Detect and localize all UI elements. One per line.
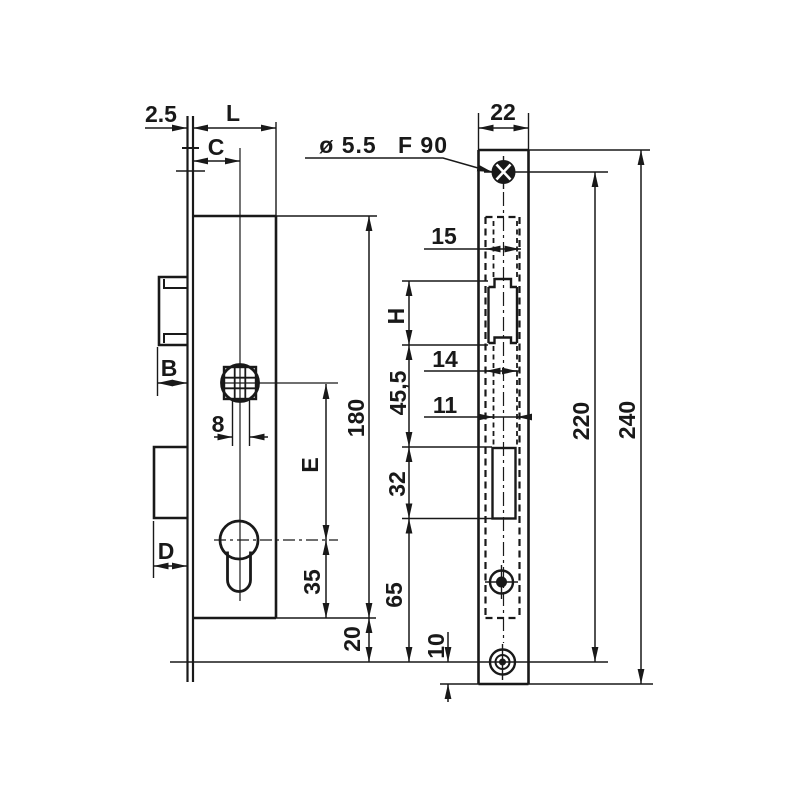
dim-backset: C (193, 134, 240, 161)
svg-text:240: 240 (614, 401, 640, 439)
svg-text:C: C (208, 134, 225, 160)
dim-plate-thickness: 2.5 (145, 101, 187, 128)
dim-latch-face-width: 14 (424, 346, 519, 372)
latch-opening (489, 279, 518, 343)
dim-latch-projection: B (158, 355, 188, 383)
svg-text:220: 220 (568, 402, 594, 440)
dim-bolt-to-plate-end: 65 (381, 519, 409, 663)
dim-screw-edge-offset: 10 (423, 632, 449, 702)
svg-text:11: 11 (433, 392, 458, 418)
dim-case-depth: L (193, 100, 276, 128)
latch-bolt-edge (159, 277, 187, 345)
dim-bolt-projection: D (154, 538, 188, 566)
cylinder-screw-hole (485, 565, 518, 599)
svg-text:L: L (226, 100, 240, 126)
dimensions: 2.5 L C ø 5.5 F 90 22 (145, 99, 641, 702)
svg-text:180: 180 (343, 399, 369, 437)
technical-drawing: 2.5 L C ø 5.5 F 90 22 (0, 0, 800, 800)
svg-text:20: 20 (339, 626, 365, 652)
svg-text:15: 15 (431, 223, 457, 249)
dim-latch-to-bolt: 45,5 (385, 345, 411, 447)
dim-cylinder-to-case-bottom: 35 (299, 540, 326, 618)
svg-text:ø 5.5: ø 5.5 (319, 132, 376, 158)
svg-text:2.5: 2.5 (145, 101, 177, 127)
dim-latch-opening-height: H (383, 281, 409, 345)
top-screw-hole (492, 156, 516, 189)
svg-text:F 90: F 90 (398, 132, 448, 158)
svg-text:E: E (297, 457, 323, 472)
dim-bolt-opening-height: 32 (384, 447, 410, 519)
svg-text:35: 35 (299, 569, 325, 595)
follower-square-hole (221, 365, 338, 402)
dim-case-width: 15 (424, 223, 521, 249)
faceplate-outline (440, 113, 653, 684)
dim-case-to-plate-end: 20 (339, 618, 369, 662)
right-view-faceplate-front (440, 113, 653, 684)
svg-text:10: 10 (423, 633, 449, 659)
deadbolt-opening (493, 448, 516, 519)
dim-faceplate-width: 22 (479, 99, 529, 128)
faceplate-edge (176, 116, 205, 682)
dim-case-height: 180 (343, 216, 369, 618)
svg-text:65: 65 (381, 582, 407, 608)
deadbolt-edge (154, 447, 187, 518)
svg-text:45,5: 45,5 (385, 370, 411, 415)
hole-note: ø 5.5 F 90 (305, 132, 492, 172)
svg-text:32: 32 (384, 471, 410, 497)
dim-faceplate-height: 240 (614, 150, 641, 684)
svg-text:14: 14 (432, 346, 458, 372)
svg-text:H: H (383, 308, 409, 325)
dim-screw-spacing: 220 (568, 172, 595, 662)
lock-drawing-canvas: 2.5 L C ø 5.5 F 90 22 (0, 0, 800, 800)
svg-text:8: 8 (212, 411, 225, 437)
svg-text:D: D (158, 538, 175, 564)
dim-centre-distance: E (297, 384, 326, 540)
svg-text:B: B (161, 355, 178, 381)
svg-text:22: 22 (490, 99, 516, 125)
